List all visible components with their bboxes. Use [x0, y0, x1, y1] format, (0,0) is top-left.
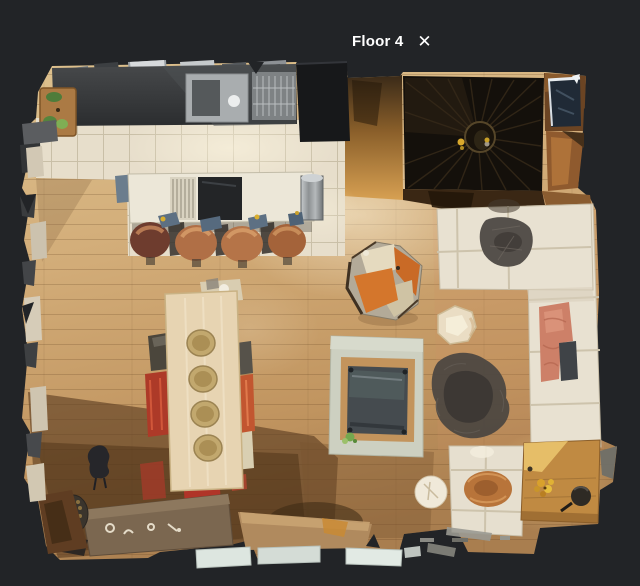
floorplan-view: Floor 4 ✕	[0, 0, 640, 586]
close-icon[interactable]: ✕	[417, 33, 431, 50]
floor-label: Floor 4	[352, 33, 403, 50]
dish-rack	[252, 72, 296, 120]
floorplan-image	[0, 0, 640, 586]
dining-table	[165, 291, 243, 491]
gray-cushion	[559, 341, 578, 381]
floorplan-canvas[interactable]	[0, 0, 640, 586]
orange-fur-cushion	[464, 471, 512, 507]
coffee-table	[329, 336, 423, 457]
trash-bin	[301, 176, 323, 220]
glossy-object	[548, 78, 581, 127]
tall-cabinet	[296, 62, 350, 142]
stump-table-1	[438, 306, 476, 344]
floor-selector-header: Floor 4 ✕	[352, 33, 432, 50]
